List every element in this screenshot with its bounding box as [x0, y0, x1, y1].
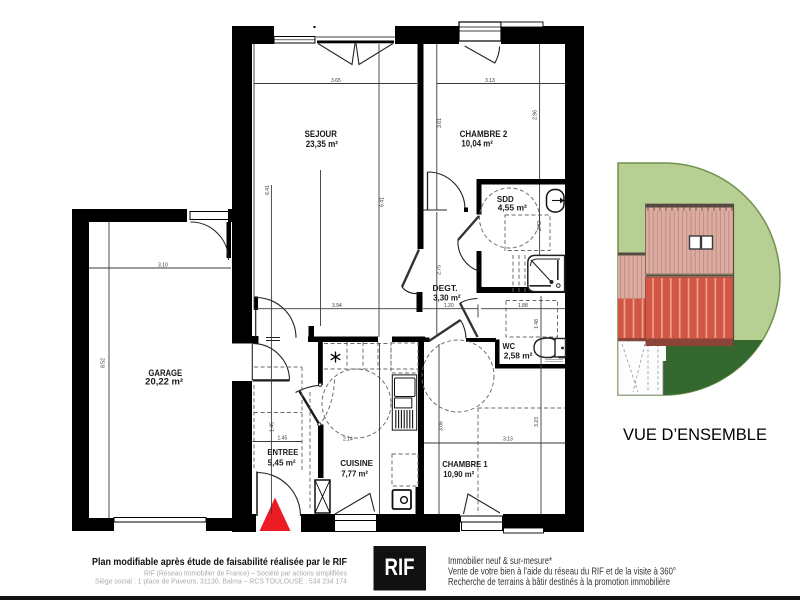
svg-text:5,45 m²: 5,45 m²: [268, 459, 296, 468]
svg-text:2,58 m²: 2,58 m²: [504, 351, 533, 361]
svg-text:10,90 m²: 10,90 m²: [443, 469, 474, 479]
svg-text:3.23: 3.23: [534, 417, 540, 427]
svg-text:CHAMBRE 2: CHAMBRE 2: [460, 129, 508, 139]
svg-text:3.94: 3.94: [332, 303, 342, 309]
svg-text:3.06: 3.06: [439, 421, 445, 431]
svg-text:ENTREE: ENTREE: [267, 448, 299, 457]
svg-text:RIF: RIF: [385, 554, 415, 581]
svg-text:8.52: 8.52: [101, 358, 107, 368]
svg-text:20,22 m²: 20,22 m²: [145, 377, 183, 387]
svg-text:1.20: 1.20: [444, 303, 454, 309]
svg-text:7,77 m²: 7,77 m²: [341, 469, 368, 479]
svg-text:6.41: 6.41: [380, 197, 386, 207]
svg-text:CUISINE: CUISINE: [340, 458, 373, 468]
svg-text:1.45: 1.45: [270, 422, 276, 432]
svg-text:6.41: 6.41: [265, 185, 271, 195]
svg-text:23,35 m²: 23,35 m²: [306, 139, 338, 149]
svg-text:3.13: 3.13: [485, 78, 495, 84]
svg-text:1.45: 1.45: [278, 436, 288, 442]
svg-text:2.75: 2.75: [437, 265, 443, 275]
svg-text:Vente de votre bien à l’aide d: Vente de votre bien à l’aide du réseau d…: [448, 567, 676, 578]
svg-text:WC: WC: [503, 341, 516, 351]
svg-text:1.88: 1.88: [518, 303, 528, 309]
svg-text:3.65: 3.65: [331, 78, 341, 84]
svg-text:10,04 m²: 10,04 m²: [461, 139, 493, 149]
svg-text:DEGT.: DEGT.: [433, 283, 458, 293]
svg-text:2.14: 2.14: [343, 437, 353, 443]
svg-text:4,55 m²: 4,55 m²: [498, 203, 527, 213]
svg-text:2.42: 2.42: [537, 221, 543, 231]
svg-text:1.48: 1.48: [534, 319, 540, 329]
svg-text:Recherche de terrains à bâtir: Recherche de terrains à bâtir destinés à…: [448, 577, 670, 588]
svg-text:CHAMBRE 1: CHAMBRE 1: [442, 459, 488, 469]
svg-text:2.96: 2.96: [533, 110, 539, 120]
svg-text:3.13: 3.13: [503, 437, 513, 443]
svg-text:VUE D’ENSEMBLE: VUE D’ENSEMBLE: [623, 425, 767, 444]
svg-text:3.10: 3.10: [158, 263, 168, 269]
svg-text:3.61: 3.61: [437, 118, 443, 128]
svg-text:Siège social : 1 place de Pave: Siège social : 1 place de Paveurs, 31130…: [95, 577, 347, 586]
svg-text:SEJOUR: SEJOUR: [305, 129, 338, 139]
svg-text:3,30 m²: 3,30 m²: [433, 293, 461, 303]
svg-text:Plan modifiable après étude de: Plan modifiable après étude de faisabili…: [92, 557, 347, 568]
svg-text:Immobilier neuf & sur-mesure*: Immobilier neuf & sur-mesure*: [448, 556, 552, 567]
